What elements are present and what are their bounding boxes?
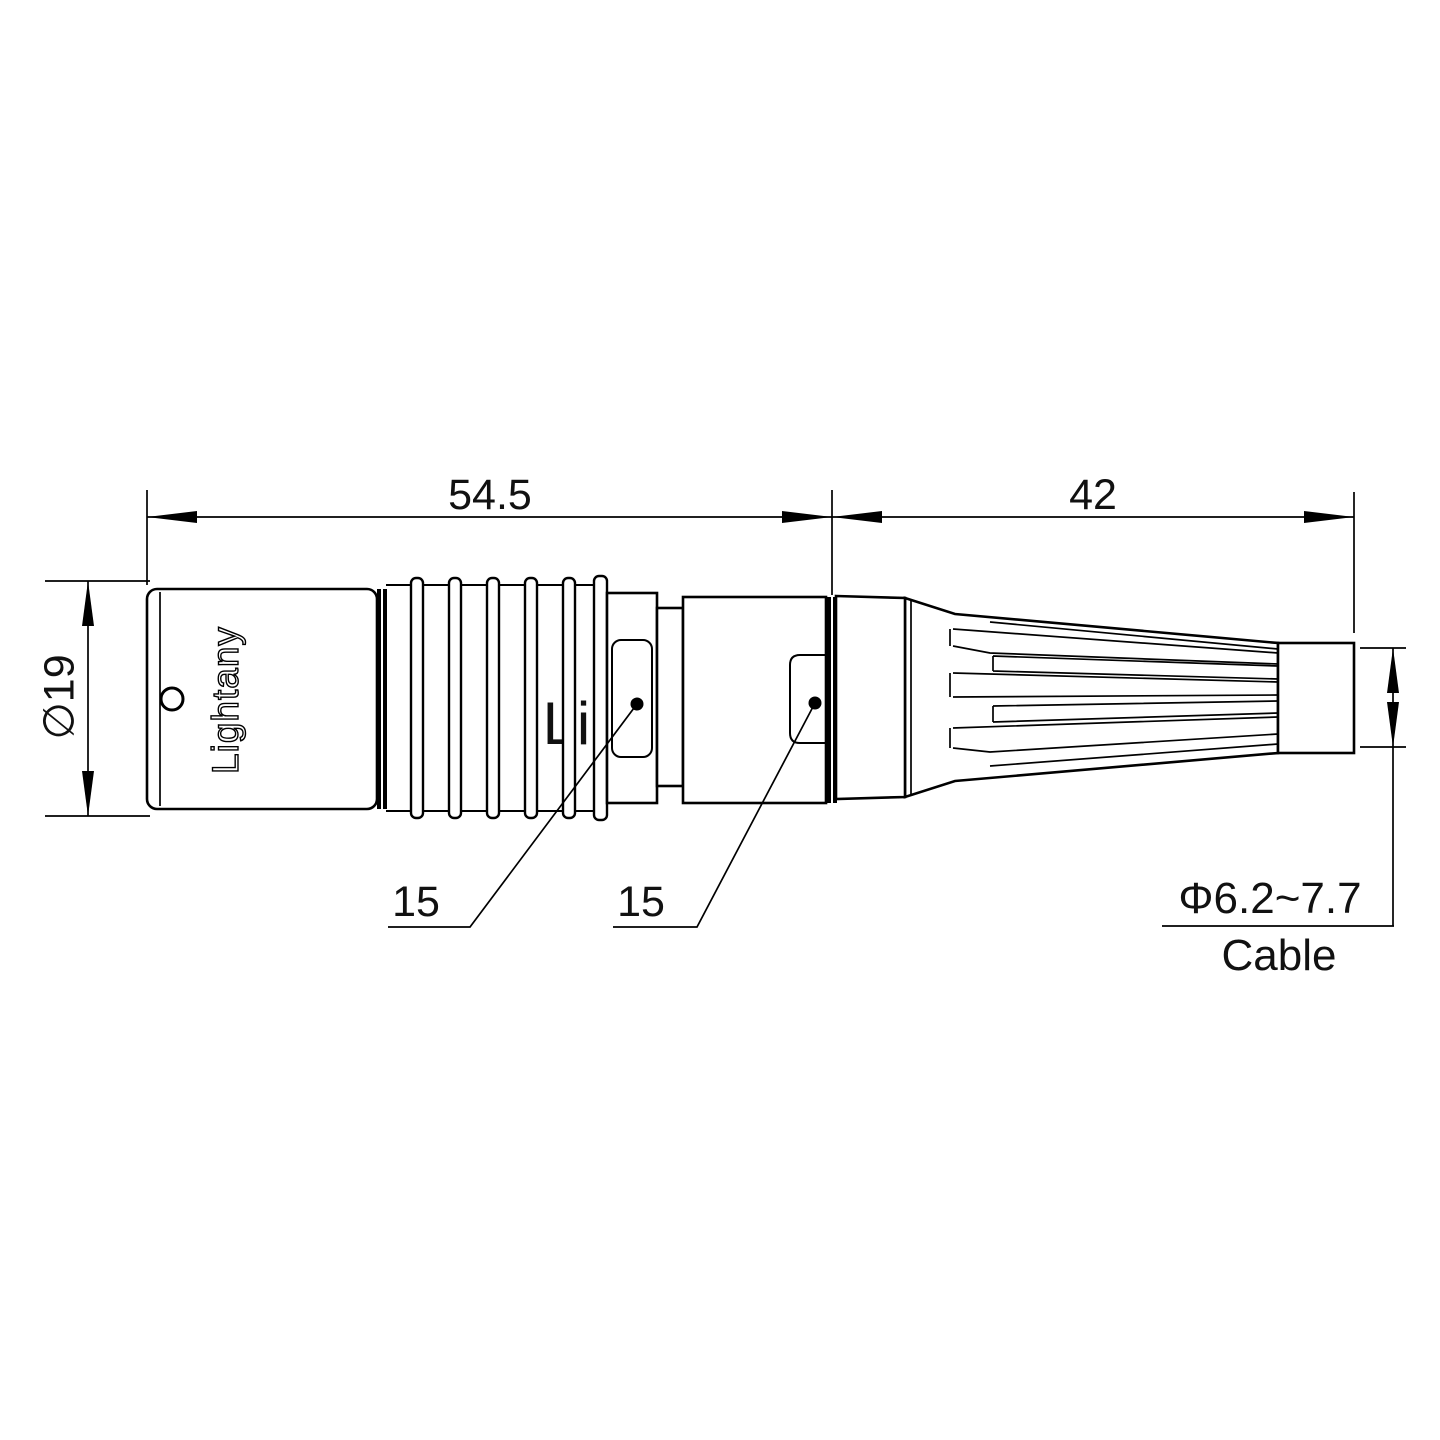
grip-rib bbox=[525, 578, 537, 818]
extension-ticks bbox=[1360, 648, 1406, 747]
connector-body: Lightany bbox=[147, 576, 1354, 820]
arrowhead-right bbox=[782, 511, 832, 523]
grip-rib bbox=[449, 578, 461, 818]
dimension-value: 54.5 bbox=[448, 471, 532, 519]
grip-rib bbox=[411, 578, 423, 818]
shell-logo-text: Lightany bbox=[205, 626, 246, 774]
neck bbox=[657, 608, 683, 786]
cable-label: Cable bbox=[1222, 931, 1337, 980]
rear-body bbox=[683, 597, 826, 803]
grip-rib bbox=[563, 578, 575, 818]
front-shell-joint-band bbox=[379, 589, 385, 809]
arrowhead-bottom bbox=[1387, 702, 1399, 747]
connector-dimension-drawing: Lightany Lightany bbox=[0, 0, 1440, 1440]
leader-value: 15 bbox=[392, 878, 440, 926]
leader-value: 15 bbox=[617, 878, 665, 926]
grip-rib bbox=[594, 576, 607, 820]
dimension-54-5: 54.5 bbox=[147, 471, 832, 595]
cable-stub bbox=[1278, 643, 1354, 753]
dimension-value: ∅19 bbox=[35, 654, 83, 739]
arrowhead-bottom bbox=[82, 771, 94, 816]
boot-joint-band bbox=[829, 597, 835, 803]
leader-dot bbox=[631, 698, 644, 711]
dimension-dia19: ∅19 bbox=[35, 581, 150, 816]
grip-rib bbox=[487, 578, 499, 818]
dimension-value: 42 bbox=[1069, 471, 1117, 519]
arrowhead-top bbox=[1387, 648, 1399, 693]
cable-range-value: Φ6.2~7.7 bbox=[1178, 874, 1361, 923]
coupling-ring-window bbox=[612, 640, 652, 757]
boot-base bbox=[836, 596, 905, 799]
arrowhead-top bbox=[82, 581, 94, 626]
arrowhead-left bbox=[147, 511, 197, 523]
technical-drawing-page: Lightany Lightany bbox=[0, 0, 1440, 1440]
arrowhead-left bbox=[832, 511, 882, 523]
arrowhead-right bbox=[1304, 511, 1354, 523]
leader-dot bbox=[809, 697, 822, 710]
